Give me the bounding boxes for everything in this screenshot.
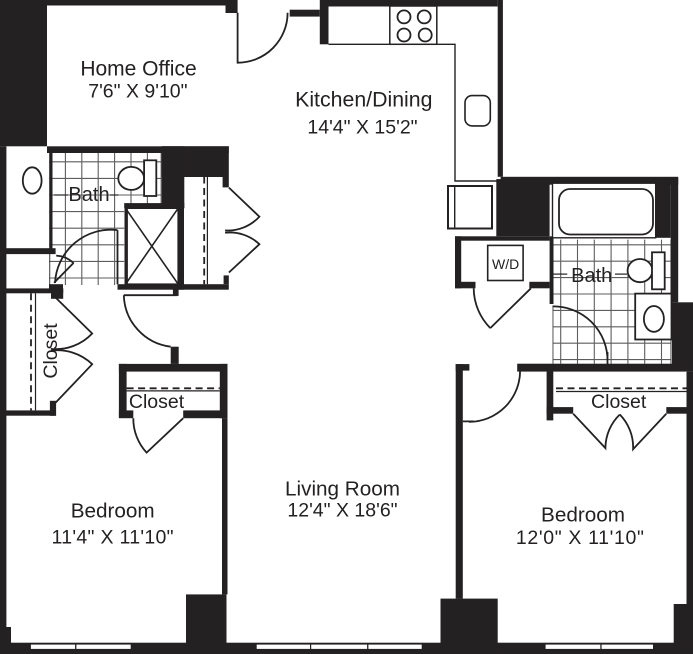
svg-text:11'4" X 11'10": 11'4" X 11'10": [52, 527, 174, 549]
svg-text:12'4" X 18'6": 12'4" X 18'6": [287, 500, 397, 522]
svg-text:12'0" X 11'10": 12'0" X 11'10": [516, 527, 645, 549]
svg-text:Closet: Closet: [40, 323, 62, 379]
svg-text:W/D: W/D: [492, 256, 519, 272]
svg-text:7'6" X 9'10": 7'6" X 9'10": [88, 80, 187, 102]
svg-text:Closet: Closet: [129, 391, 185, 413]
svg-text:Bedroom: Bedroom: [71, 500, 155, 523]
svg-text:Living Room: Living Room: [285, 477, 400, 500]
svg-text:Kitchen/Dining: Kitchen/Dining: [295, 88, 432, 112]
svg-text:Bedroom: Bedroom: [541, 504, 625, 527]
svg-text:Home Office: Home Office: [80, 57, 196, 80]
svg-text:Closet: Closet: [591, 391, 647, 413]
svg-text:Bath: Bath: [571, 265, 612, 287]
svg-text:Bath: Bath: [68, 184, 109, 206]
svg-text:14'4" X 15'2": 14'4" X 15'2": [307, 116, 417, 138]
